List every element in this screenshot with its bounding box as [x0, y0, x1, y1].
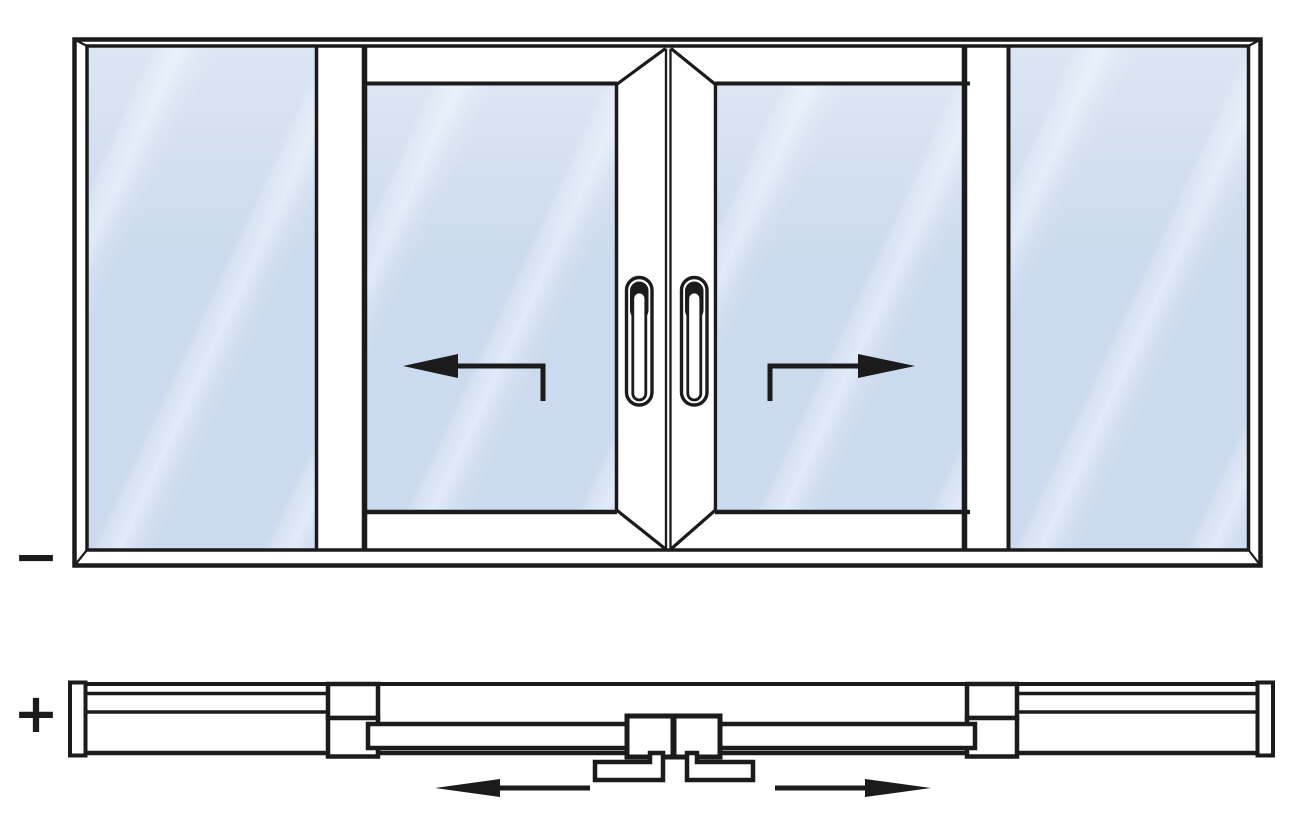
frame-miter-joints: [75, 40, 1261, 566]
sliding-door-diagram: − +: [0, 0, 1293, 834]
slide-left-arrow-icon: [403, 354, 543, 401]
plan-slide-left-arrow-icon: [435, 779, 590, 797]
plan-slide-right-arrow-icon: [775, 779, 931, 797]
meeting-stiles: [666, 49, 671, 550]
minus-side-label: −: [8, 525, 64, 589]
elevation-view: [75, 40, 1261, 566]
plan-right-slider-profile: [712, 724, 975, 748]
plan-right-end-cap: [1258, 683, 1274, 756]
plan-left-end-cap: [70, 683, 86, 756]
plus-side-label: +: [8, 682, 64, 746]
door-handle-left: [627, 278, 653, 406]
plan-view: [70, 683, 1273, 798]
plan-left-fixed-panel-profile: [84, 694, 332, 713]
plan-center-interlock: [627, 716, 720, 757]
plan-right-fixed-panel-profile: [1006, 694, 1259, 713]
door-handle-right: [682, 278, 708, 406]
sliding-sash-left: [362, 46, 666, 550]
slide-right-arrow-icon: [770, 354, 915, 401]
plan-left-slider-profile: [368, 724, 633, 748]
outer-frame: [75, 40, 1261, 566]
diagram-linework: [0, 0, 1293, 834]
sliding-sash-right: [671, 46, 970, 550]
